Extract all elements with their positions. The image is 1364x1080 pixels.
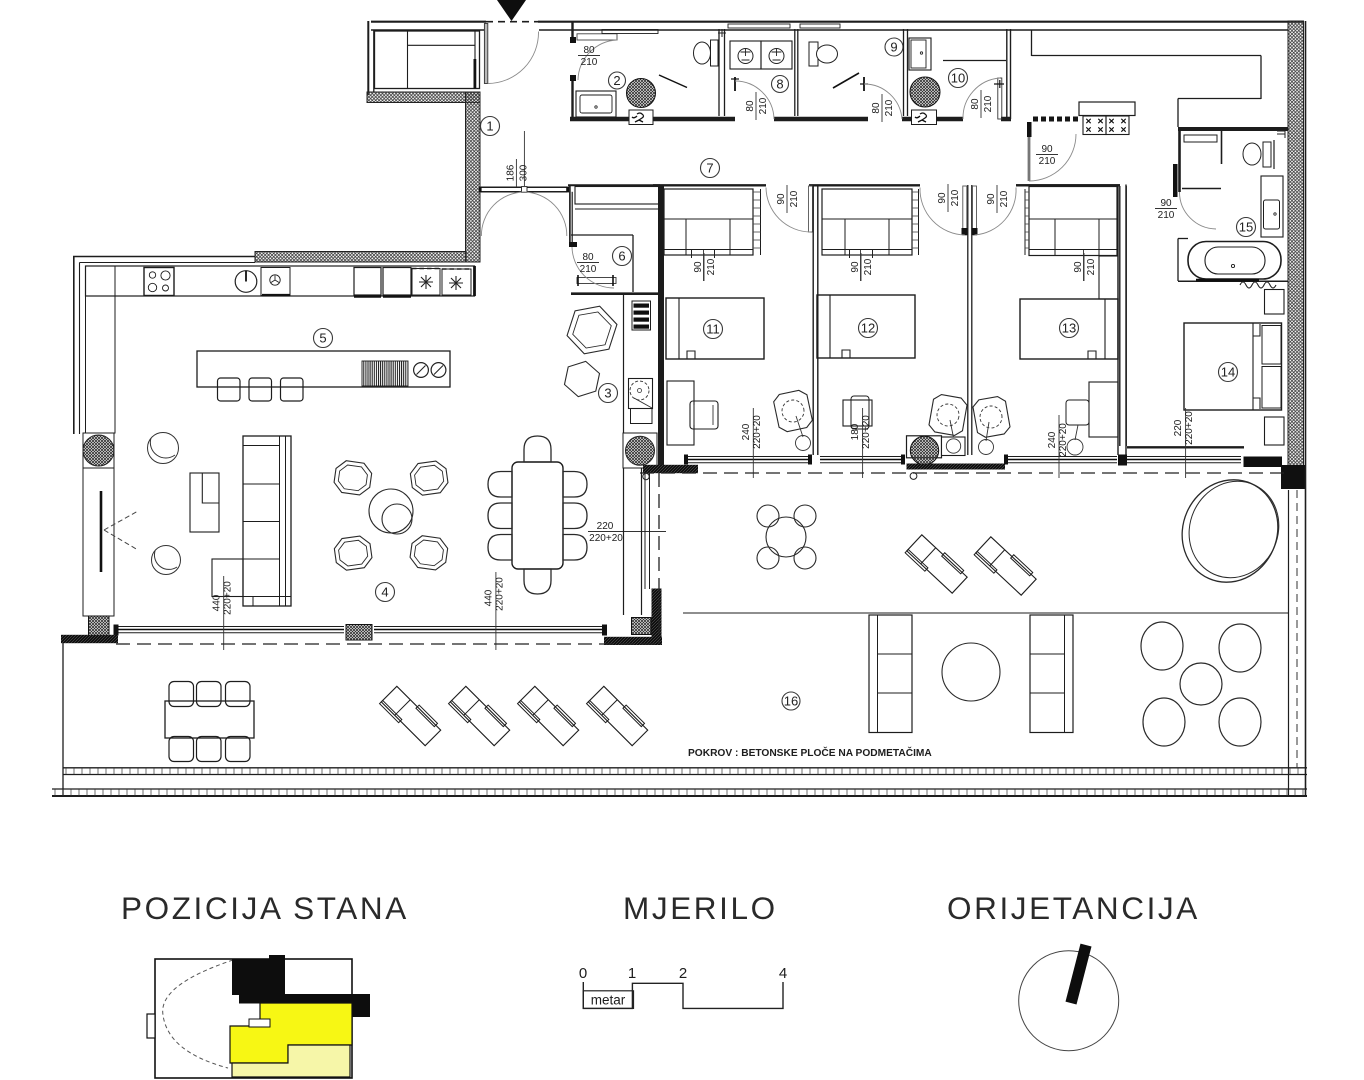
svg-text:90: 90: [986, 193, 997, 205]
svg-text:6: 6: [618, 249, 625, 264]
svg-text:10: 10: [951, 71, 965, 86]
svg-text:MJERILO: MJERILO: [623, 890, 778, 926]
svg-text:300: 300: [518, 164, 529, 181]
svg-text:220+20: 220+20: [1058, 423, 1069, 457]
svg-text:12: 12: [861, 321, 875, 336]
svg-text:210: 210: [758, 97, 769, 114]
svg-text:210: 210: [1039, 156, 1056, 167]
svg-text:4: 4: [779, 965, 787, 982]
svg-text:1: 1: [486, 119, 493, 134]
svg-text:5: 5: [319, 331, 326, 346]
svg-text:13: 13: [1062, 321, 1076, 336]
svg-text:80: 80: [582, 252, 594, 263]
svg-text:metar: metar: [591, 993, 626, 1008]
svg-text:180: 180: [850, 423, 861, 440]
svg-text:8: 8: [776, 77, 783, 92]
svg-text:210: 210: [863, 258, 874, 275]
svg-text:9: 9: [890, 40, 897, 55]
svg-text:220: 220: [1173, 419, 1184, 436]
svg-text:210: 210: [789, 190, 800, 207]
svg-text:220: 220: [597, 521, 614, 532]
svg-text:186: 186: [505, 164, 516, 181]
svg-text:14: 14: [1221, 365, 1235, 380]
svg-text:440: 440: [484, 589, 495, 606]
svg-text:90: 90: [850, 261, 861, 273]
svg-text:240: 240: [741, 423, 752, 440]
svg-text:220+20: 220+20: [223, 581, 234, 615]
svg-text:90: 90: [1073, 261, 1084, 273]
svg-text:4: 4: [381, 585, 388, 600]
svg-text:220+20: 220+20: [752, 415, 763, 449]
svg-text:2: 2: [613, 73, 620, 88]
svg-text:90: 90: [1160, 198, 1172, 209]
svg-text:210: 210: [884, 99, 895, 116]
svg-text:80: 80: [583, 45, 595, 56]
svg-text:210: 210: [983, 95, 994, 112]
svg-text:440: 440: [212, 594, 223, 611]
svg-text:90: 90: [693, 261, 704, 273]
svg-text:2: 2: [679, 965, 687, 982]
svg-text:90: 90: [1041, 144, 1053, 155]
svg-text:210: 210: [580, 264, 597, 275]
svg-text:0: 0: [579, 965, 587, 982]
svg-text:210: 210: [950, 189, 961, 206]
svg-text:11: 11: [706, 322, 720, 337]
svg-text:220+20: 220+20: [1184, 411, 1195, 445]
svg-text:80: 80: [871, 102, 882, 114]
svg-text:210: 210: [1086, 258, 1097, 275]
svg-text:3: 3: [604, 386, 611, 401]
svg-text:80: 80: [970, 98, 981, 110]
svg-text:80: 80: [745, 100, 756, 112]
svg-text:15: 15: [1239, 220, 1253, 235]
svg-text:90: 90: [937, 192, 948, 204]
svg-text:POZICIJA STANA: POZICIJA STANA: [121, 890, 409, 926]
svg-text:240: 240: [1047, 431, 1058, 448]
svg-text:16: 16: [784, 694, 798, 709]
svg-text:220+20: 220+20: [589, 533, 623, 544]
svg-text:210: 210: [999, 190, 1010, 207]
svg-text:220+20: 220+20: [861, 415, 872, 449]
svg-text:210: 210: [706, 258, 717, 275]
svg-text:1: 1: [628, 965, 636, 982]
svg-text:210: 210: [1158, 210, 1175, 221]
svg-text:ORIJETANCIJA: ORIJETANCIJA: [947, 890, 1200, 926]
svg-text:7: 7: [706, 161, 713, 176]
svg-text:90: 90: [776, 193, 787, 205]
svg-text:220+20: 220+20: [495, 577, 506, 611]
svg-text:POKROV : BETONSKE PLOČE NA PO: POKROV : BETONSKE PLOČE NA PODMETAČIMA: [688, 746, 932, 759]
svg-text:210: 210: [581, 57, 598, 68]
